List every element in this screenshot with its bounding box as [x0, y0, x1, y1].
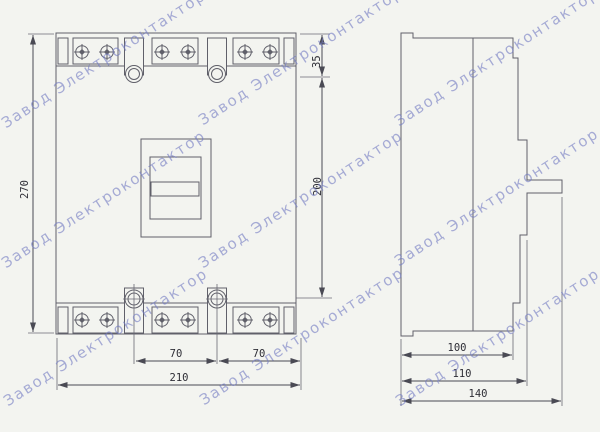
dim-label-overall-depth: 140 — [469, 388, 488, 400]
operating-handle — [141, 139, 211, 237]
dim-label-overall-width: 210 — [170, 372, 189, 384]
terminal-screw — [154, 312, 170, 328]
handle-lever — [151, 182, 199, 196]
terminal-screw — [180, 312, 196, 328]
top-mounting-tab — [125, 38, 144, 83]
dimensions: 270 35 200 70 70 210 100 110 140 — [19, 35, 561, 401]
terminal-screw — [237, 312, 253, 328]
side-view — [401, 33, 562, 336]
terminal-screw — [237, 44, 253, 60]
dim-label-top-to-hole: 35 — [311, 55, 323, 68]
dim-label-hole-pitch-left: 70 — [170, 348, 183, 360]
terminal-end-inset — [284, 307, 294, 333]
terminal-pad — [73, 38, 118, 64]
technical-drawing: 270 35 200 70 70 210 100 110 140 — [0, 0, 600, 432]
mounting-boss-inner — [129, 69, 140, 80]
terminal-end-inset — [58, 38, 68, 64]
terminal-screw — [262, 312, 278, 328]
terminal-screw — [154, 44, 170, 60]
terminal-end-inset — [284, 38, 294, 64]
side-profile-outline — [401, 33, 562, 336]
dim-label-overall-height: 270 — [19, 180, 31, 199]
terminal-screw — [262, 44, 278, 60]
terminal-screw — [74, 44, 90, 60]
terminal-screw — [74, 312, 90, 328]
terminal-screw — [99, 44, 115, 60]
extension-lines — [28, 34, 562, 406]
mounting-boss-inner — [212, 69, 223, 80]
drawing-canvas: 270 35 200 70 70 210 100 110 140 — [0, 0, 600, 432]
terminal-screw — [99, 312, 115, 328]
terminal-screw — [180, 44, 196, 60]
dim-label-body-depth: 100 — [448, 342, 467, 354]
dim-label-hole-span: 200 — [312, 177, 324, 196]
terminal-pad — [152, 38, 198, 64]
terminal-end-inset — [58, 307, 68, 333]
dim-label-hole-pitch-right: 70 — [253, 348, 266, 360]
front-view — [56, 33, 296, 334]
dim-label-front-depth: 110 — [453, 368, 472, 380]
top-mounting-tab — [208, 38, 227, 83]
